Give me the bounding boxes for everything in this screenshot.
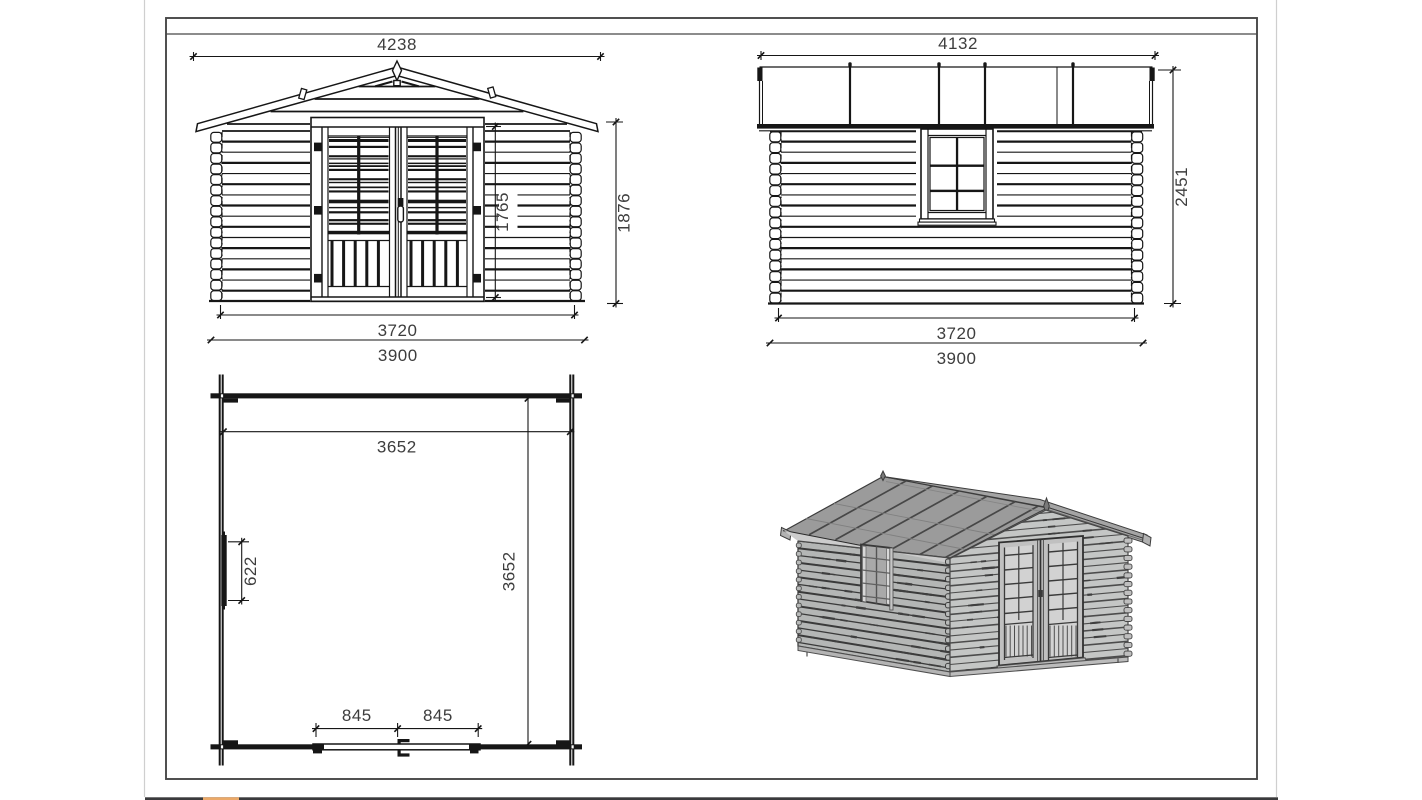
svg-text:3900: 3900 (378, 346, 418, 365)
svg-text:1765: 1765 (493, 192, 512, 232)
svg-text:3652: 3652 (500, 551, 519, 591)
svg-text:3720: 3720 (937, 324, 977, 343)
svg-text:622: 622 (241, 556, 260, 586)
svg-text:845: 845 (342, 706, 372, 725)
svg-text:3652: 3652 (377, 438, 417, 457)
svg-text:845: 845 (423, 706, 453, 725)
svg-text:4132: 4132 (938, 34, 978, 53)
svg-text:3720: 3720 (378, 321, 418, 340)
svg-text:3900: 3900 (937, 349, 977, 368)
svg-text:4238: 4238 (377, 35, 417, 54)
svg-text:1876: 1876 (615, 193, 634, 233)
svg-text:2451: 2451 (1172, 167, 1191, 207)
